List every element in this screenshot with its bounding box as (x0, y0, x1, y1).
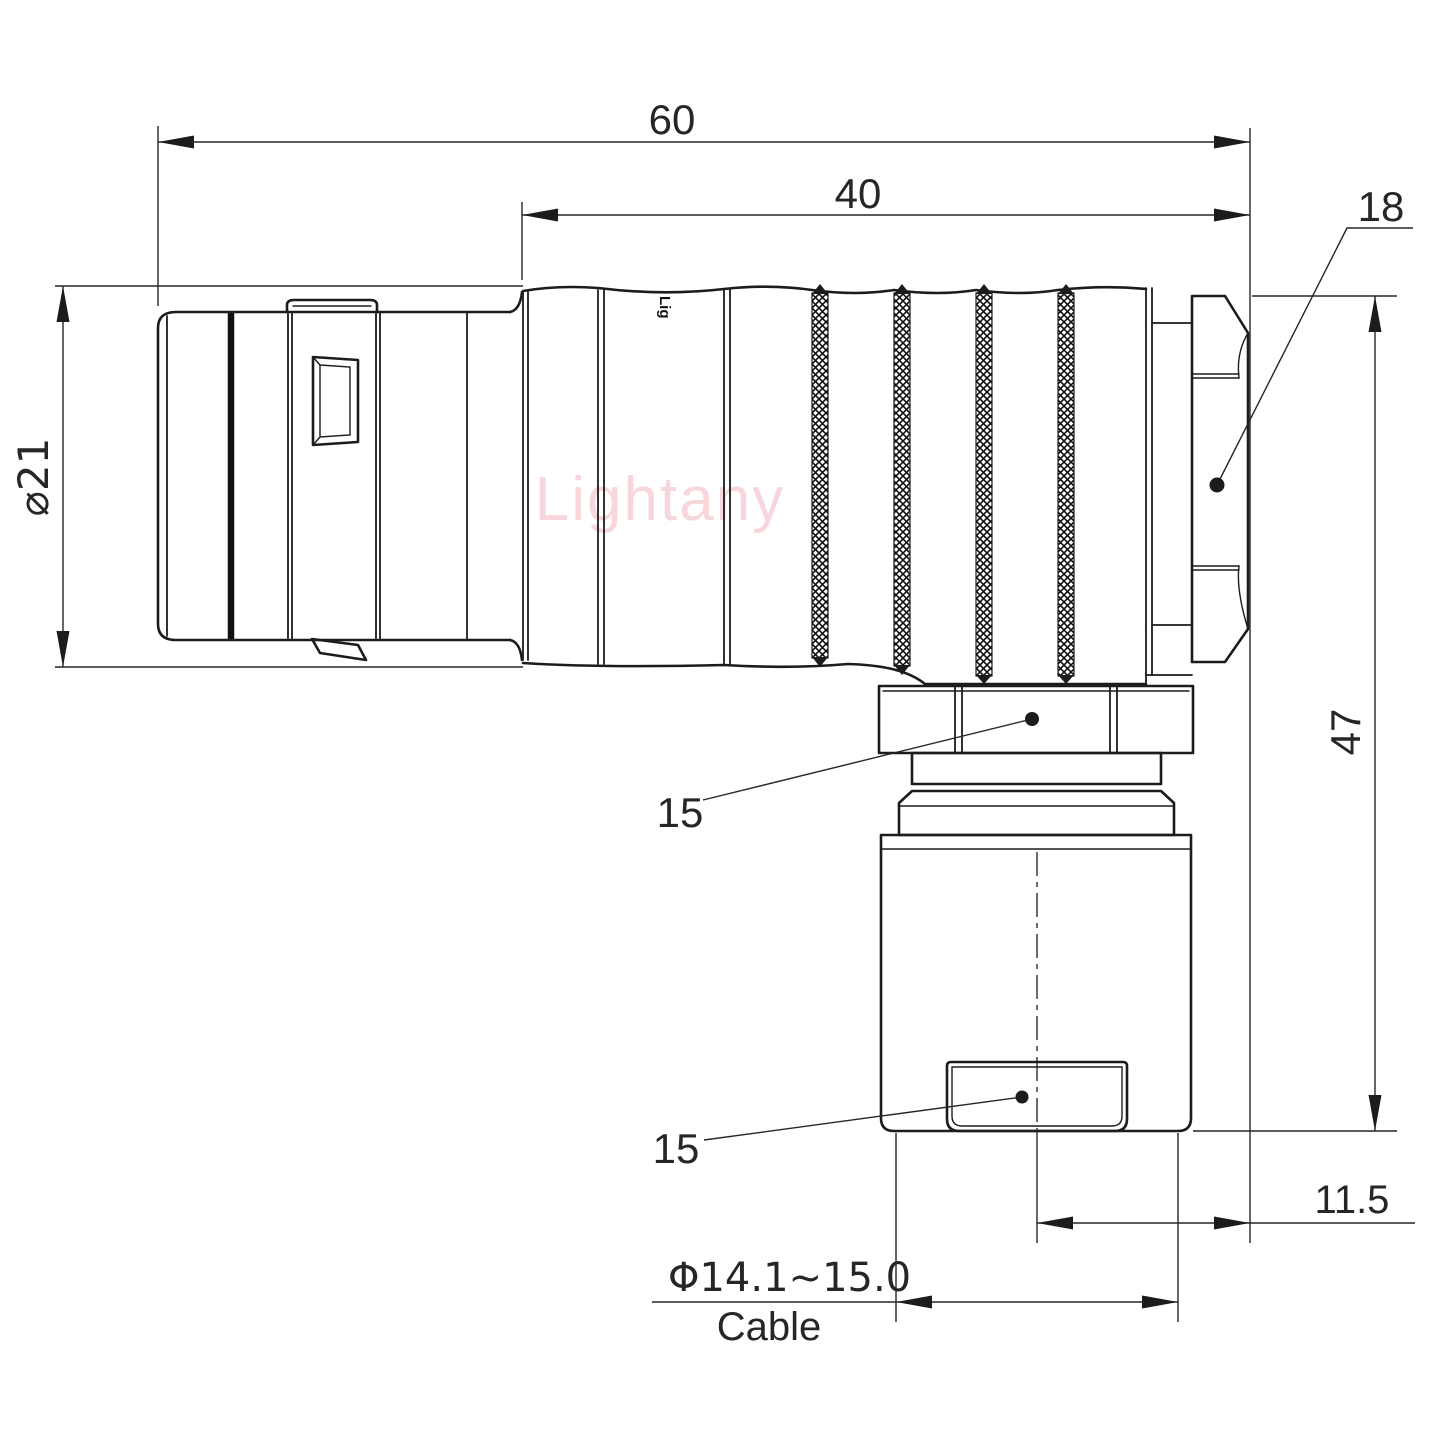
dim-axis-offset: 11.5 (1037, 1131, 1415, 1243)
svg-text:15: 15 (653, 1125, 700, 1172)
bottom-tab (312, 639, 366, 660)
dim-front-diameter: ⌀21 (9, 286, 523, 667)
svg-text:⌀21: ⌀21 (9, 438, 58, 517)
dim-overall-height: 47 (1193, 296, 1397, 1131)
callout-elbow-nut: 15 (657, 712, 1039, 836)
knurl-bands (812, 284, 1074, 684)
gland-neck (899, 753, 1174, 835)
svg-text:15: 15 (657, 789, 704, 836)
dim-overall-length: 60 (158, 96, 1250, 1243)
svg-text:60: 60 (649, 96, 696, 143)
dim-cable-diameter: Φ14.1~15.0 Cable (652, 1133, 1178, 1349)
elbow-down-leg (879, 684, 1193, 1131)
drawing-sheet: Lightany (0, 0, 1440, 1440)
svg-text:Φ14.1~15.0: Φ14.1~15.0 (668, 1255, 911, 1301)
technical-drawing: Lightany (0, 0, 1440, 1440)
dim-body-length: 40 (522, 170, 1250, 280)
svg-text:40: 40 (835, 170, 882, 217)
body-logo-text: Lig (656, 296, 673, 319)
svg-text:47: 47 (1322, 709, 1369, 756)
connector-side-view: Lig (158, 284, 1248, 1131)
front-plug-barrel (158, 292, 528, 660)
cable-gland-body (881, 835, 1191, 1131)
svg-text:11.5: 11.5 (1315, 1178, 1390, 1222)
callout-rear-nut: 18 (1210, 183, 1414, 493)
keying-slot (313, 357, 358, 445)
watermark-text: Lightany (535, 465, 785, 534)
svg-text:Cable: Cable (717, 1305, 822, 1349)
svg-text:18: 18 (1358, 183, 1405, 230)
